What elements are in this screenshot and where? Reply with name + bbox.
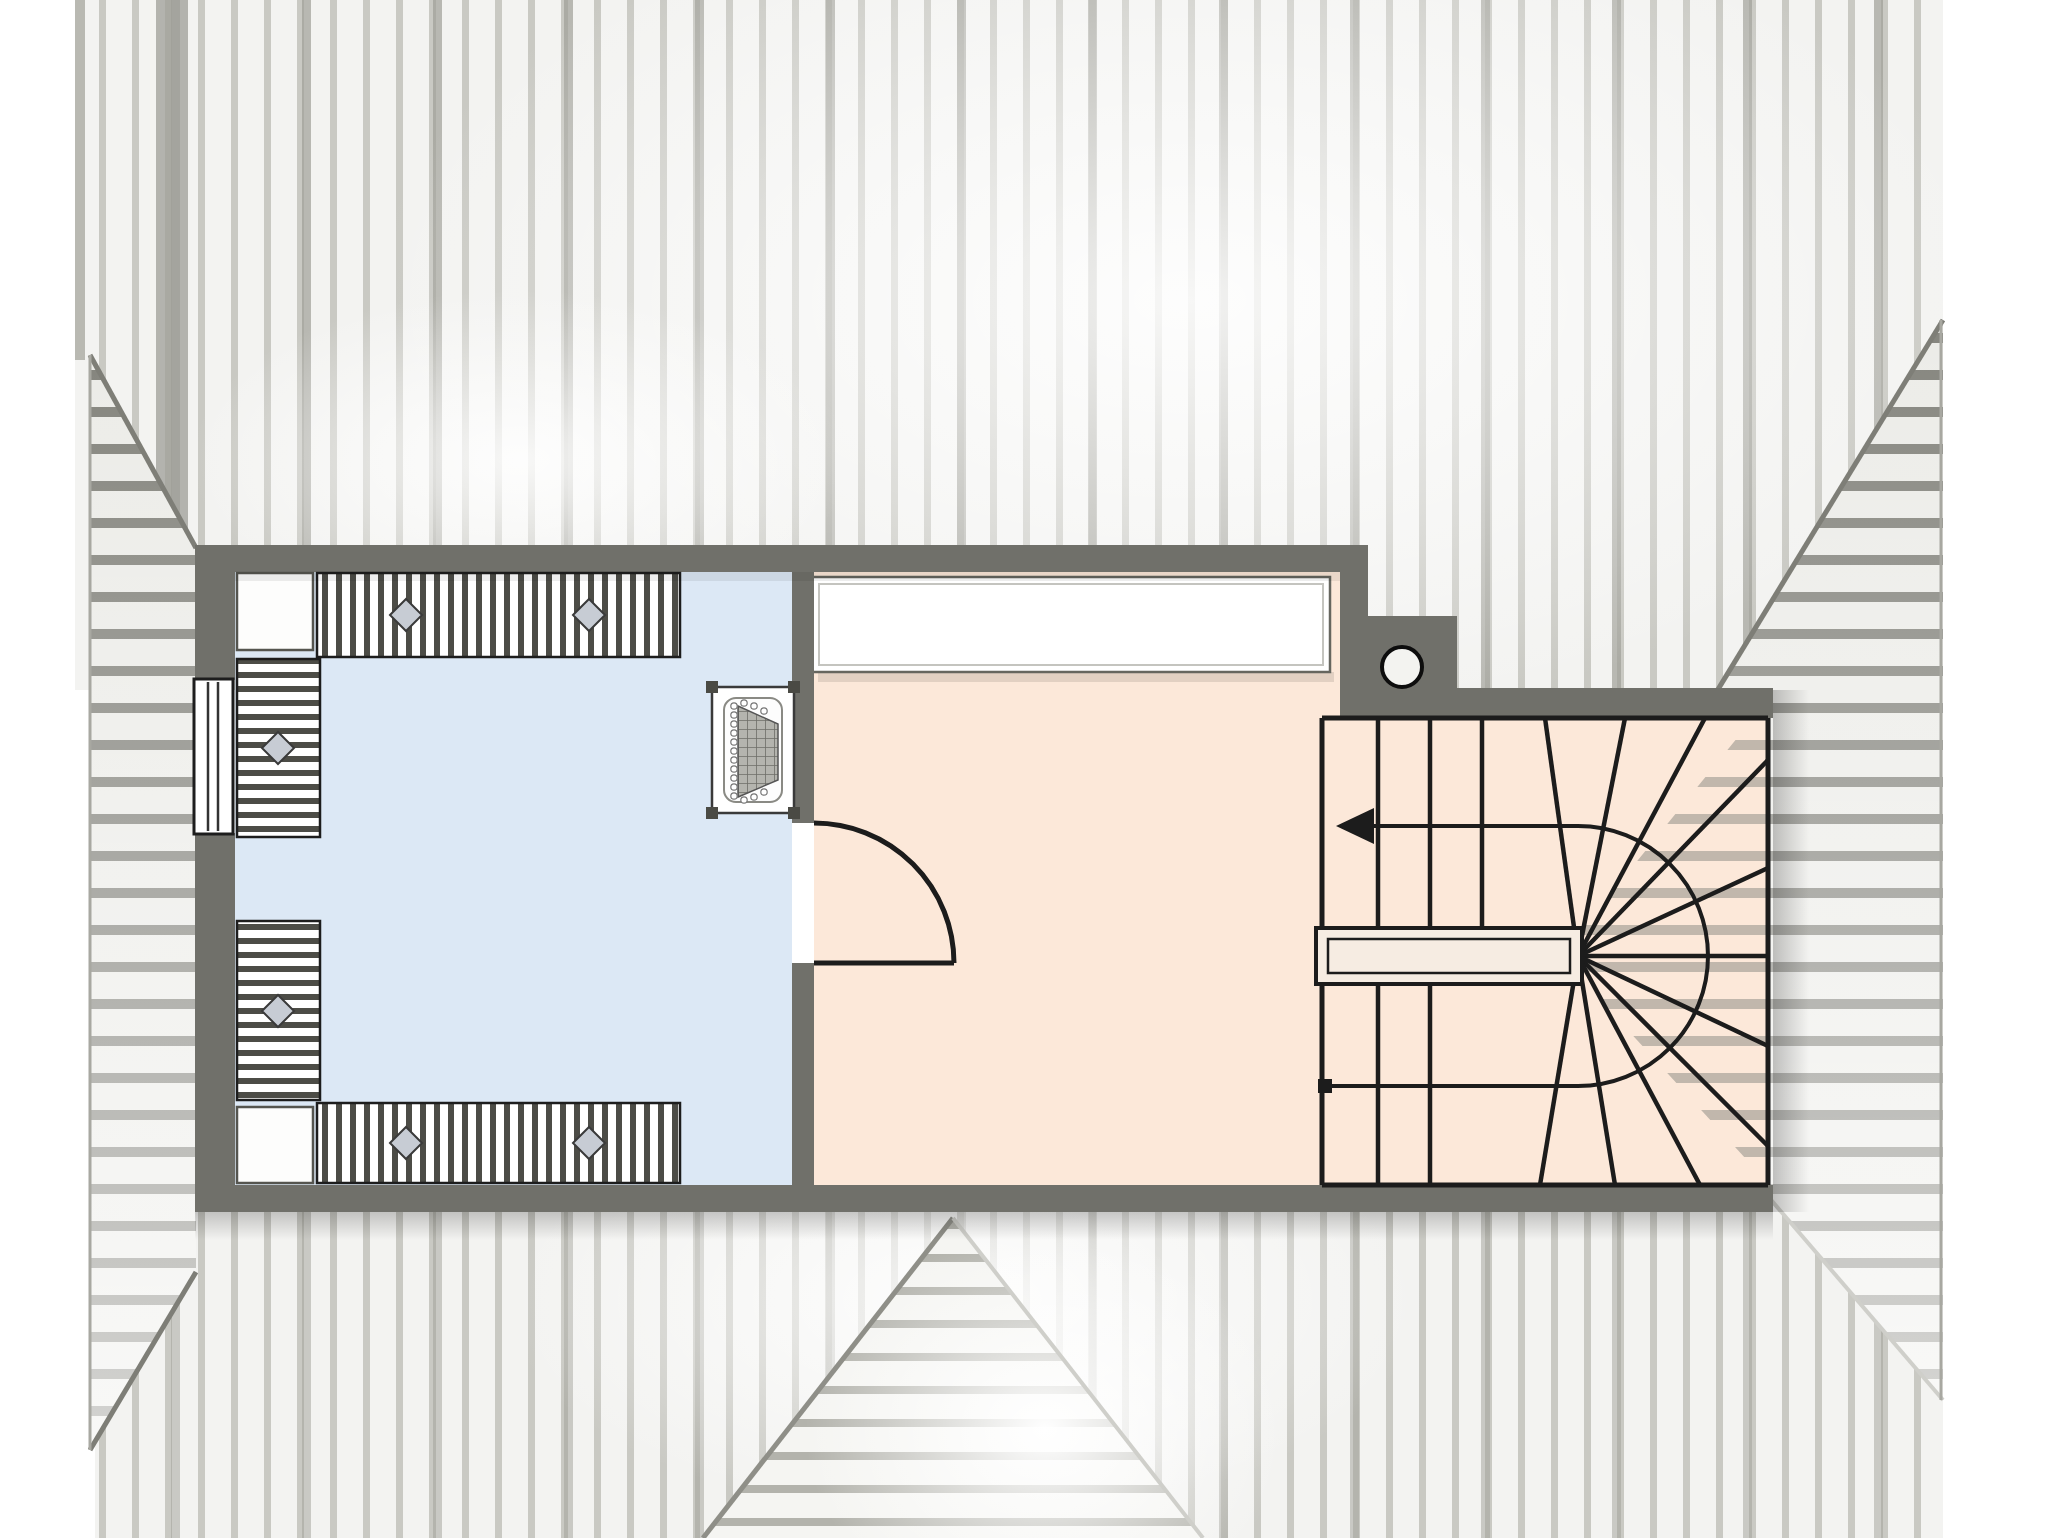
gable-window [194, 679, 233, 834]
wall-top [195, 545, 1368, 572]
corner-cabinet-bottom-left [237, 1107, 313, 1183]
attic-floor-plan-drawing [0, 0, 2048, 1538]
cabinet-body [812, 577, 1330, 672]
stair-handrail [1316, 928, 1582, 984]
built-in-cabinet [812, 577, 1334, 682]
window-frame [194, 679, 233, 834]
shadow-under-top-wall [235, 572, 1340, 581]
roof-left-edge-band [75, 0, 85, 360]
handrail-outer [1316, 928, 1582, 984]
corner-cabinet-top-left [237, 573, 313, 650]
basin-fixture [706, 681, 800, 819]
basin-corner-post [788, 681, 800, 693]
wall-divider-upper [792, 572, 814, 823]
wall-divider-lower [792, 963, 814, 1185]
radiator-top-wall [317, 573, 680, 657]
walk-line-start-dot [1318, 1079, 1332, 1093]
basin-corner-post [788, 807, 800, 819]
wall-bottom [195, 1185, 1773, 1212]
shadow-below-building [195, 1212, 1773, 1240]
wall-left-lower [195, 833, 235, 1212]
basin-corner-post [706, 681, 718, 693]
radiator-bottom-wall [317, 1103, 680, 1183]
chimney-flue-circle [1382, 647, 1422, 687]
roof-ridge-band [156, 0, 188, 545]
cabinet-shadow [818, 672, 1334, 682]
wall-left-upper [195, 545, 235, 680]
floor-plan-canvas [0, 0, 2048, 1538]
wall-stair-top [1457, 688, 1773, 718]
roof-left-hip [90, 355, 196, 1450]
shadow-right-of-stair [1773, 690, 1809, 1212]
basin-corner-post [706, 807, 718, 819]
